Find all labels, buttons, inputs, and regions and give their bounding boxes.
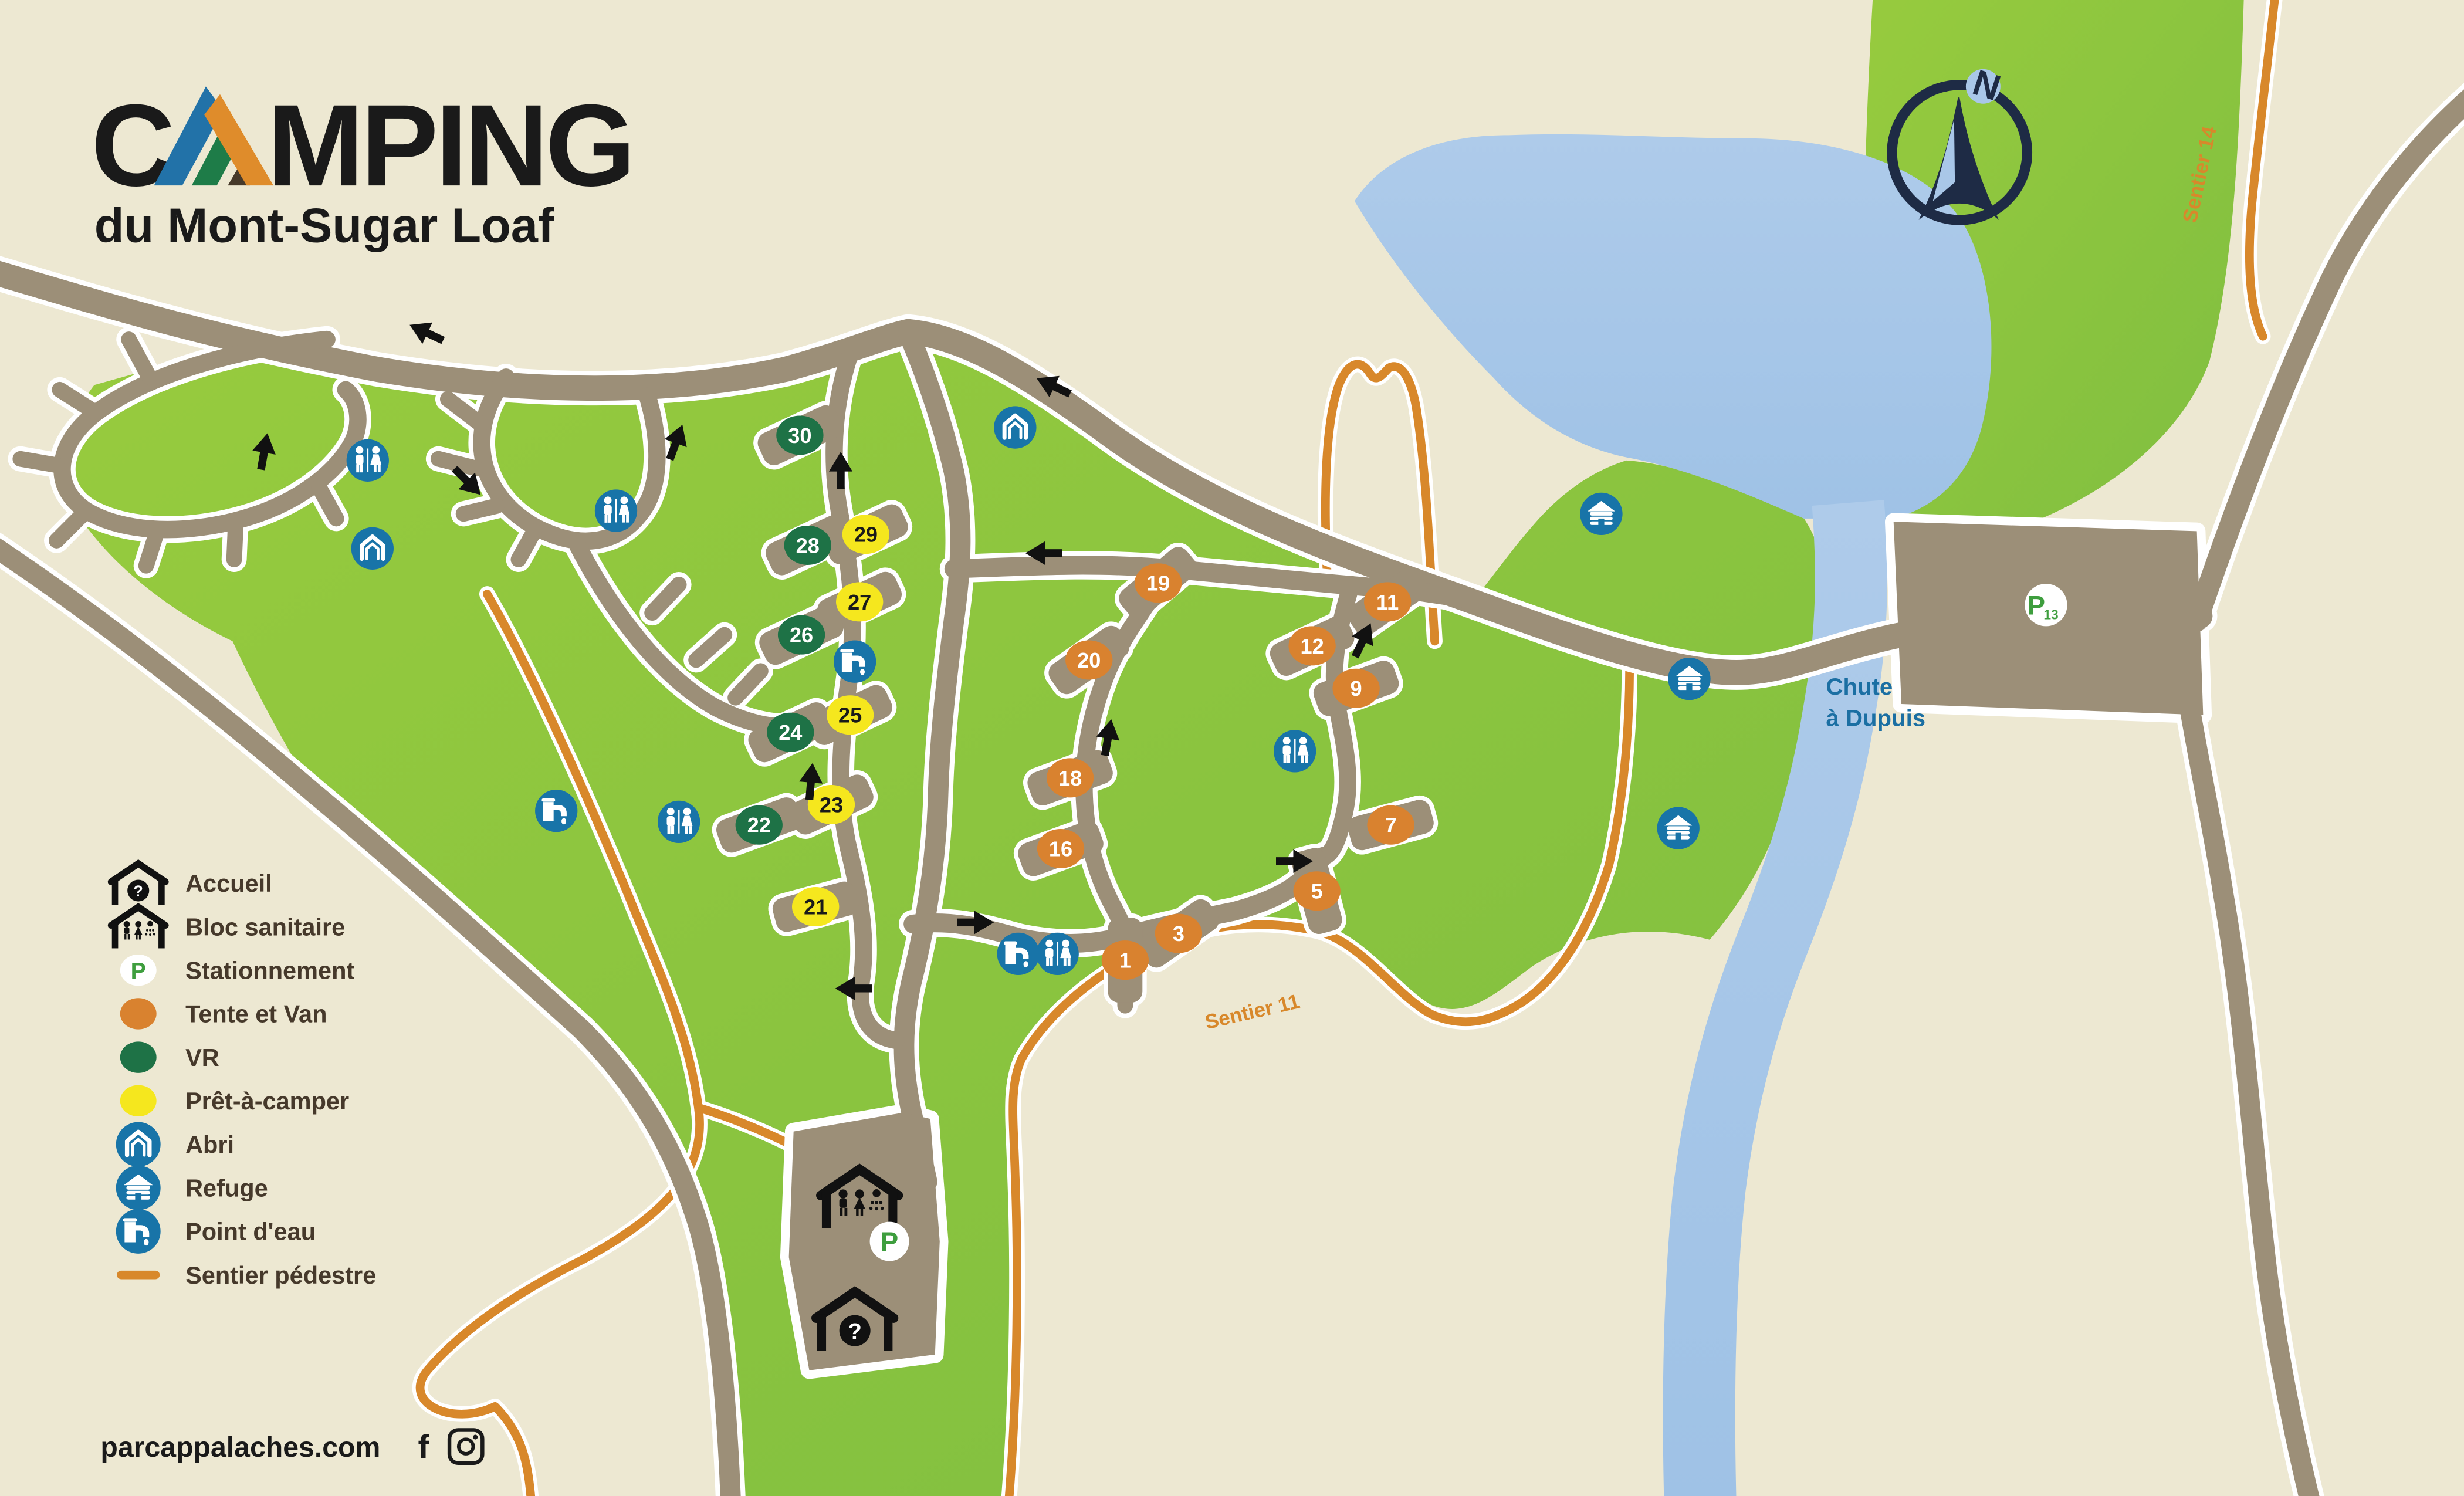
site-number: 1: [1119, 948, 1131, 972]
legend-label: Sentier pédestre: [185, 1261, 376, 1289]
site-number: 3: [1173, 922, 1184, 946]
site-marker-26[interactable]: 26: [778, 615, 825, 655]
site-number: 21: [804, 895, 827, 919]
site-marker-19[interactable]: 19: [1135, 563, 1182, 603]
site-number: 25: [838, 703, 862, 727]
legend-item-tente-et-van: Tente et Van: [120, 998, 327, 1029]
refuge-icon[interactable]: [1657, 807, 1700, 849]
chute-label-line2: à Dupuis: [1826, 705, 1926, 732]
site-marker-23[interactable]: 23: [808, 785, 855, 824]
site-marker-12[interactable]: 12: [1288, 626, 1335, 665]
refuge-icon[interactable]: [1668, 658, 1710, 700]
logo-word-end: MPING: [267, 81, 632, 211]
site-marker-11[interactable]: 11: [1364, 582, 1411, 621]
toilets-icon[interactable]: [1037, 933, 1079, 975]
toilets-icon[interactable]: [347, 439, 389, 482]
facebook-icon[interactable]: f: [418, 1429, 429, 1465]
site-marker-30[interactable]: 30: [776, 415, 823, 455]
leg-parking: [120, 955, 157, 986]
legend-label: Bloc sanitaire: [185, 913, 345, 940]
site-marker-3[interactable]: 3: [1155, 914, 1202, 953]
legend-label: VR: [185, 1044, 219, 1071]
water-point-icon[interactable]: [834, 641, 876, 683]
leg-trail: [117, 1271, 160, 1280]
water-point-icon[interactable]: [535, 790, 577, 832]
site-number: 20: [1077, 648, 1101, 672]
water-point-icon[interactable]: [997, 933, 1040, 975]
toilets-icon[interactable]: [595, 489, 637, 532]
camping-map: ? P: [0, 0, 2464, 1496]
site-marker-20[interactable]: 20: [1065, 641, 1112, 680]
sym-eau: [116, 1209, 161, 1254]
refuge-icon[interactable]: [1580, 493, 1622, 535]
legend-label: Tente et Van: [185, 1000, 327, 1028]
site-number: 18: [1058, 766, 1082, 790]
site-number: 30: [788, 424, 811, 448]
chute-label-line1: Chute: [1826, 673, 1893, 700]
legend-label: Prêt-à-camper: [185, 1087, 349, 1115]
legend-label: Stationnement: [185, 956, 354, 984]
site-marker-7[interactable]: 7: [1367, 805, 1414, 845]
leg-vr: [120, 1041, 157, 1072]
toilets-icon[interactable]: [1274, 730, 1316, 772]
site-number: 27: [848, 590, 871, 614]
parking-main-label: P: [881, 1227, 898, 1257]
leg-pac: [120, 1085, 157, 1116]
parking-13-marker: P13: [2025, 584, 2067, 626]
site-number: 24: [779, 720, 802, 744]
site-number: 29: [854, 523, 878, 547]
site-marker-28[interactable]: 28: [784, 526, 831, 565]
sym-abri: [116, 1122, 161, 1167]
abri-icon[interactable]: [351, 527, 394, 570]
leg-tv: [120, 998, 157, 1029]
site-number: 16: [1049, 837, 1072, 861]
site-marker-24[interactable]: 24: [767, 713, 814, 752]
site-number: 11: [1376, 590, 1399, 614]
site-number: 19: [1146, 571, 1170, 595]
abri-icon[interactable]: [994, 406, 1036, 448]
site-marker-27[interactable]: 27: [836, 582, 883, 621]
site-marker-9[interactable]: 9: [1332, 669, 1379, 708]
site-number: 7: [1385, 813, 1396, 837]
logo-word-start: C: [91, 81, 172, 211]
site-marker-18[interactable]: 18: [1047, 758, 1094, 797]
site-number: 26: [790, 623, 813, 647]
sym-refuge: [116, 1166, 161, 1210]
legend-label: Accueil: [185, 869, 272, 897]
site-number: 22: [747, 813, 771, 837]
site-marker-29[interactable]: 29: [842, 515, 889, 554]
legend-label: Abri: [185, 1131, 234, 1158]
site-number: 9: [1351, 676, 1362, 700]
footer: parcappalaches.com f: [100, 1429, 482, 1465]
legend-label: Refuge: [185, 1174, 268, 1201]
site-marker-5[interactable]: 5: [1293, 871, 1340, 911]
site-marker-1[interactable]: 1: [1102, 940, 1149, 980]
parking-main-marker: P: [870, 1222, 909, 1261]
site-marker-21[interactable]: 21: [792, 887, 839, 926]
toilets-icon[interactable]: [658, 801, 700, 843]
logo-subtitle: du Mont-Sugar Loaf: [94, 198, 554, 253]
site-marker-16[interactable]: 16: [1037, 829, 1084, 868]
site-marker-25[interactable]: 25: [827, 695, 874, 735]
legend-label: Point d'eau: [185, 1218, 316, 1245]
website-link[interactable]: parcappalaches.com: [100, 1431, 380, 1463]
site-number: 5: [1311, 879, 1323, 903]
site-marker-22[interactable]: 22: [736, 805, 783, 845]
site-number: 23: [820, 793, 843, 817]
site-number: 12: [1300, 634, 1324, 658]
site-number: 28: [796, 533, 820, 557]
